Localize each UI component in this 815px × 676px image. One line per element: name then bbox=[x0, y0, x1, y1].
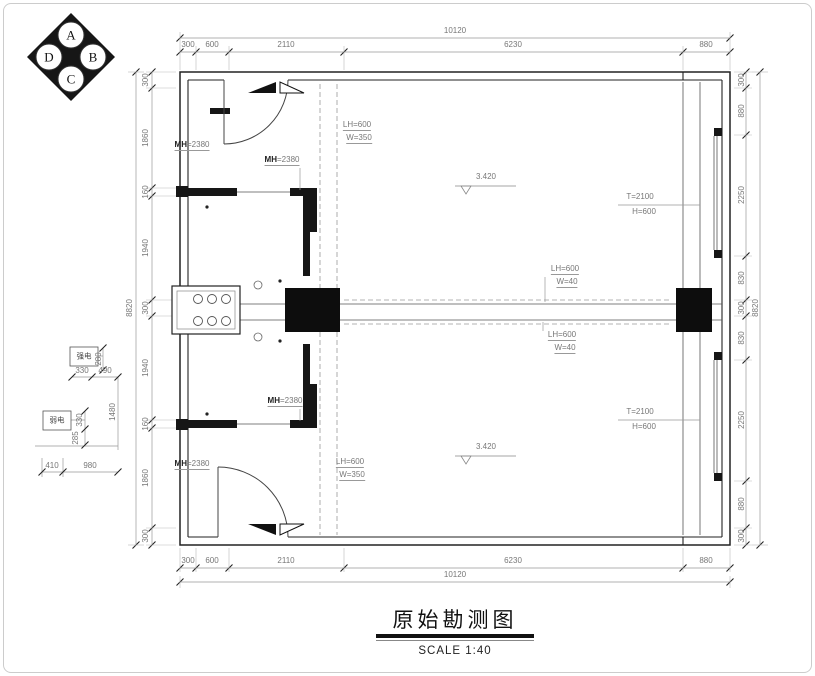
drawing-title: 原始勘测图 bbox=[355, 604, 555, 634]
dimension-ticks bbox=[39, 32, 769, 588]
level-markers bbox=[455, 186, 516, 464]
label-leaders bbox=[300, 168, 700, 421]
title-underline bbox=[376, 634, 534, 638]
floor-plan-drawing bbox=[0, 0, 815, 676]
utility-boxes bbox=[43, 347, 98, 430]
floor-plan-page: 1012030060021106230880300600211062308801… bbox=[0, 0, 815, 676]
title-underline-thin bbox=[376, 640, 534, 641]
dashed-beam-lines bbox=[320, 84, 672, 535]
outer-walls bbox=[180, 72, 730, 545]
columns bbox=[285, 288, 712, 332]
compass bbox=[27, 13, 115, 101]
scale-label: SCALE 1:40 bbox=[355, 645, 555, 657]
title-block: 原始勘测图 SCALE 1:40 bbox=[355, 604, 555, 634]
right-column bbox=[676, 288, 712, 332]
pipe-shaft bbox=[172, 286, 240, 334]
weak-current-box bbox=[43, 411, 71, 430]
top-door-swing bbox=[224, 80, 288, 144]
center-column bbox=[285, 288, 340, 332]
bottom-door-swing bbox=[218, 467, 288, 537]
strong-current-box bbox=[70, 347, 98, 366]
wall-piers bbox=[176, 108, 722, 481]
